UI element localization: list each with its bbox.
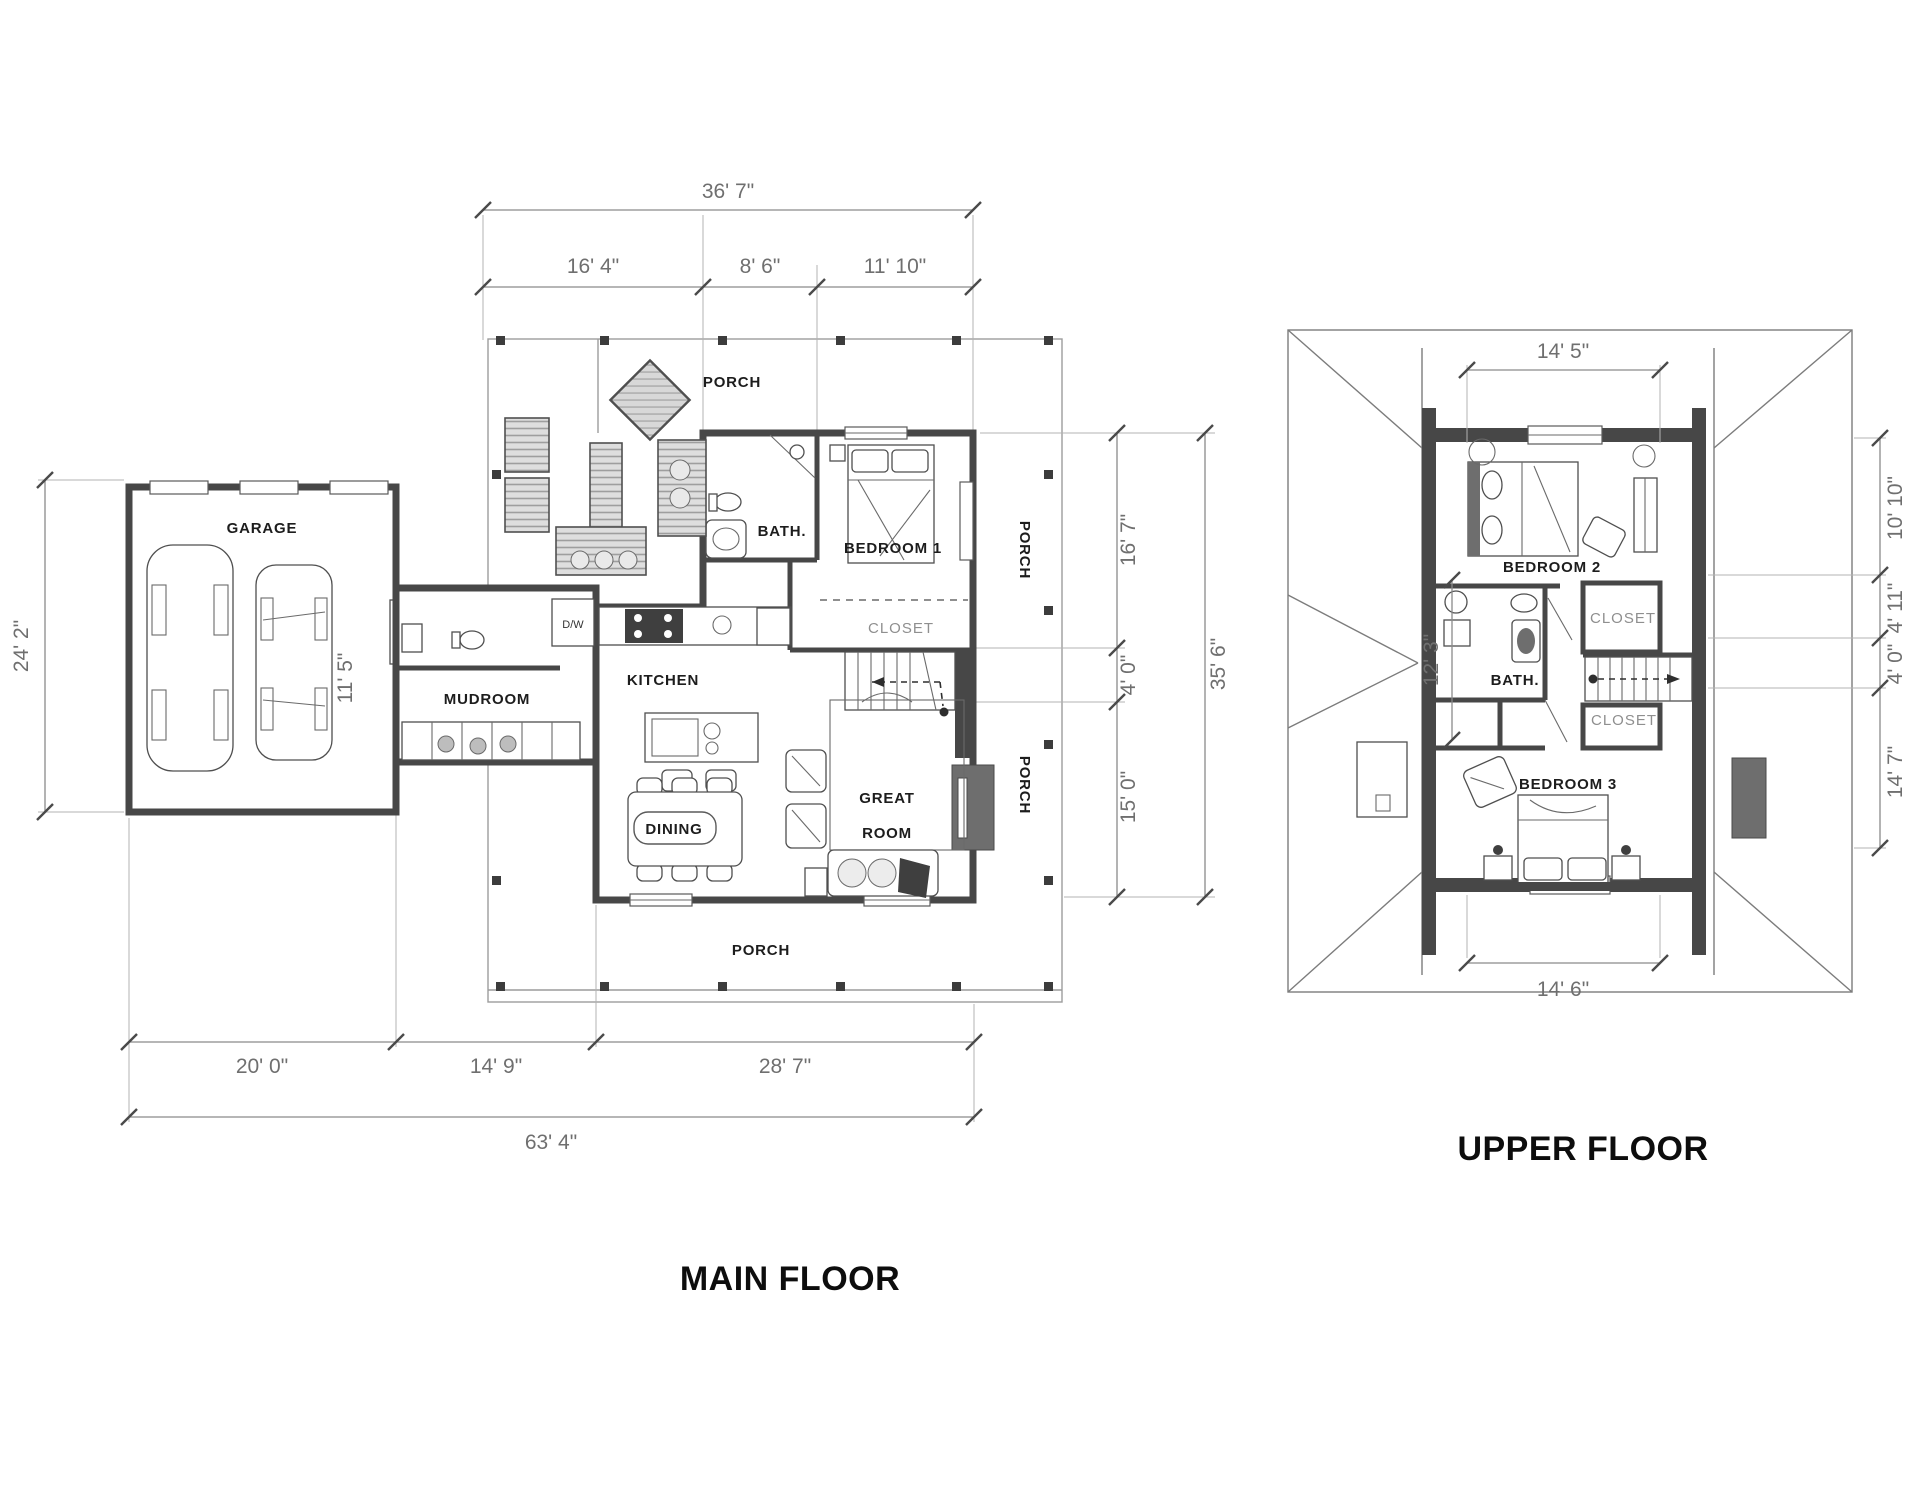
bedroom3-chair-icon <box>1462 755 1518 809</box>
room-label-closet-lower: CLOSET <box>1591 712 1657 729</box>
garage-car2-icon <box>256 565 332 760</box>
room-label-dining: DINING <box>645 821 702 838</box>
dim-top-total: 36' 7" <box>702 180 754 203</box>
main-floor-title: MAIN FLOOR <box>680 1260 900 1298</box>
dim-top-seg3: 11' 10" <box>864 255 926 278</box>
porch-swing-icon <box>590 443 622 533</box>
fridge-icon <box>757 608 790 645</box>
mudroom-lockers <box>402 722 580 760</box>
bedroom2-chair-icon <box>1581 515 1627 558</box>
porch-chair-icon <box>505 418 549 472</box>
upper-floor-title: UPPER FLOOR <box>1457 1130 1708 1168</box>
dim-top-seg2: 8' 6" <box>740 255 781 278</box>
floor-plan-drawing: 36' 7" 16' 4" 8' 6" 11' 10" 16' 7" 4' 0"… <box>0 0 1920 1500</box>
dim-bottom-seg2: 14' 9" <box>470 1055 522 1078</box>
dim-left-total: 24' 2" <box>10 620 33 672</box>
sink-icon <box>1445 591 1467 613</box>
dim-upper-right-seg4: 14' 7" <box>1884 746 1907 798</box>
dim-right-seg3: 15' 0" <box>1117 771 1140 823</box>
stairs-upper <box>1585 657 1692 701</box>
toilet-icon <box>1511 594 1537 612</box>
dim-right-seg1: 16' 7" <box>1117 514 1140 566</box>
bath-fixtures-upper <box>1444 591 1540 662</box>
room-label-bedroom3: BEDROOM 3 <box>1519 776 1617 793</box>
dim-bottom-total: 63' 4" <box>525 1131 577 1154</box>
chimney-icon <box>1732 758 1766 838</box>
upper-floor-plan <box>1288 330 1888 992</box>
room-label-dw: D/W <box>562 619 584 631</box>
room-label-porch-bottom: PORCH <box>732 942 790 959</box>
mudroom-sink-icon <box>402 624 422 652</box>
bedroom2-bed-icon <box>1468 439 1657 559</box>
room-label-great-room-1: GREAT <box>859 790 914 807</box>
dim-upper-bottom: 14' 6" <box>1537 978 1589 1001</box>
room-label-closet-upper: CLOSET <box>1590 610 1656 627</box>
dim-upper-right-seg1: 10' 10" <box>1884 476 1907 540</box>
room-label-porch-right-upper: PORCH <box>1016 521 1033 579</box>
dim-right-seg2: 4' 0" <box>1117 655 1140 696</box>
stairs-main <box>845 652 955 717</box>
room-label-bath-upper: BATH. <box>1491 672 1540 689</box>
porch-furniture <box>505 360 706 575</box>
stair-wall <box>955 650 971 758</box>
shower-icon <box>1444 620 1470 646</box>
dim-right-total: 35' 6" <box>1207 638 1230 690</box>
room-label-mudroom: MUDROOM <box>444 691 530 708</box>
dim-upper-left: 12' 3" <box>1420 634 1443 686</box>
porch-chair-icon <box>505 478 549 532</box>
room-label-porch-right-lower: PORCH <box>1016 756 1033 814</box>
dim-bottom-seg1: 20' 0" <box>236 1055 288 1078</box>
dim-upper-right-seg3: 4' 0" <box>1884 644 1907 685</box>
mudroom-toilet-icon <box>460 631 484 649</box>
dim-garage-depth: 11' 5" <box>334 653 357 704</box>
floor-plan-sheet: 36' 7" 16' 4" 8' 6" 11' 10" 16' 7" 4' 0"… <box>0 0 1920 1500</box>
room-label-garage: GARAGE <box>227 520 298 537</box>
dim-top-seg1: 16' 4" <box>567 255 619 278</box>
room-label-bedroom1: BEDROOM 1 <box>844 540 942 557</box>
room-label-kitchen: KITCHEN <box>627 672 699 689</box>
stove-icon <box>625 609 683 643</box>
room-label-bedroom2: BEDROOM 2 <box>1503 559 1601 576</box>
main-floor-plan <box>37 202 1215 1125</box>
dim-upper-right-seg2: 4' 11" <box>1884 583 1907 634</box>
dim-bottom-seg3: 28' 7" <box>759 1055 811 1078</box>
room-label-great-room-2: ROOM <box>862 825 912 842</box>
ceiling-fan-icon <box>1469 439 1495 465</box>
room-label-porch-top: PORCH <box>703 374 761 391</box>
room-label-closet: CLOSET <box>868 620 934 637</box>
room-label-bath: BATH. <box>758 523 807 540</box>
hanging-chair-icon <box>610 360 689 439</box>
garage-car-icon <box>147 545 233 771</box>
dim-upper-top: 14' 5" <box>1537 340 1589 363</box>
roof-skylight <box>1357 742 1407 817</box>
